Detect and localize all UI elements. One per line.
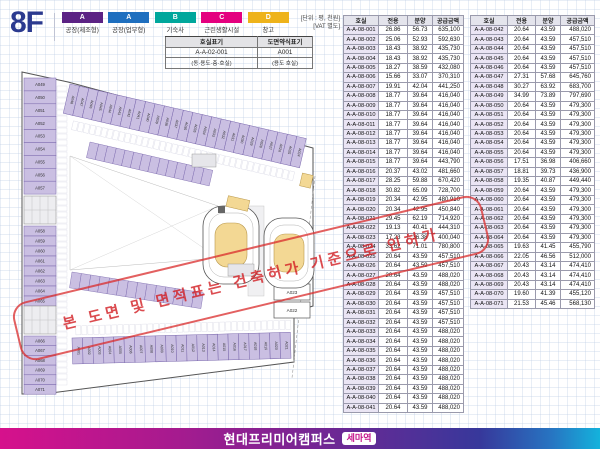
room-label: A016 (232, 342, 236, 351)
unit-row: A-A-08-00318.4338.92435,730 (344, 44, 464, 53)
supply-price: 488,020 (433, 328, 464, 337)
area-supply: 43.14 (536, 271, 561, 280)
area-supply: 43.59 (536, 35, 561, 44)
area-supply: 43.59 (408, 356, 433, 365)
area-exclusive: 29.45 (379, 214, 408, 223)
unit-id: A-A-08-051 (471, 110, 508, 119)
room-label: A017 (243, 342, 247, 351)
area-exclusive: 18.77 (379, 129, 408, 138)
supply-price: 474,410 (561, 271, 595, 280)
room-label: A052 (35, 121, 45, 126)
supply-price: 457,510 (433, 252, 464, 261)
area-supply: 43.59 (408, 252, 433, 261)
unit-id: A-A-08-024 (344, 243, 379, 252)
unit-row: A-A-08-00918.7739.64416,040 (344, 101, 464, 110)
area-exclusive: 20.64 (508, 139, 536, 148)
area-supply: 43.59 (408, 309, 433, 318)
supply-price: 400,040 (433, 233, 464, 242)
area-supply: 46.56 (536, 252, 561, 261)
unit-note-line1: [단위 : 평, 천원] (252, 15, 340, 23)
unit-row: A-A-08-03720.6443.59488,020 (344, 365, 464, 374)
core-block (192, 154, 216, 167)
area-supply: 43.59 (536, 195, 561, 204)
room-label: A003 (97, 346, 101, 355)
area-supply: 39.64 (408, 120, 433, 129)
unit-row: A-A-08-02020.3442.95450,840 (344, 205, 464, 214)
supply-price: 406,660 (561, 158, 595, 167)
room-label: A056 (35, 172, 45, 177)
ramp-core-right (274, 234, 304, 272)
column-header: 전용 (508, 16, 536, 26)
elevator (218, 206, 225, 213)
room-label: A001 (76, 347, 80, 356)
unit-row: A-A-08-03120.6443.59457,510 (344, 309, 464, 318)
room-label: A068 (35, 358, 45, 363)
area-exclusive: 22.05 (508, 252, 536, 261)
room-label: A009 (160, 344, 164, 353)
room-label: A014 (212, 343, 216, 352)
area-exclusive: 18.77 (379, 158, 408, 167)
area-supply: 38.59 (408, 63, 433, 72)
unit-id: A-A-08-011 (344, 120, 379, 129)
unit-id: A-A-08-048 (471, 82, 508, 91)
area-exclusive: 18.77 (379, 139, 408, 148)
supply-price: 479,300 (561, 214, 595, 223)
area-exclusive: 20.64 (508, 186, 536, 195)
unit-id: A-A-08-038 (344, 375, 379, 384)
supply-price: 457,510 (433, 261, 464, 270)
unit-row: A-A-08-02129.4562.19714,920 (344, 214, 464, 223)
unit-id: A-A-08-047 (471, 73, 508, 82)
room-label: A062 (35, 269, 45, 274)
area-exclusive: 17.51 (508, 158, 536, 167)
unit-id: A-A-08-005 (344, 63, 379, 72)
supply-price: 479,300 (561, 110, 595, 119)
area-exclusive: 20.64 (379, 365, 408, 374)
supply-price: 479,300 (561, 129, 595, 138)
room-label: A013 (201, 343, 205, 352)
unit-id: A-A-08-066 (471, 252, 508, 261)
project-logo: 현대프리미어캠퍼스 (224, 429, 336, 448)
area-supply: 42.04 (408, 82, 433, 91)
supply-price: 457,510 (433, 299, 464, 308)
supply-price: 435,730 (433, 54, 464, 63)
supply-price: 457,510 (561, 44, 595, 53)
area-supply: 43.59 (408, 403, 433, 412)
room-label: A015 (222, 343, 226, 352)
area-exclusive: 20.64 (508, 148, 536, 157)
area-supply: 65.09 (408, 186, 433, 195)
unit-id: A-A-08-027 (344, 271, 379, 280)
area-exclusive: 20.64 (379, 328, 408, 337)
area-supply: 43.59 (408, 328, 433, 337)
area-exclusive: 18.81 (508, 167, 536, 176)
area-supply: 43.59 (408, 280, 433, 289)
unit-row: A-A-08-01620.3743.02481,660 (344, 167, 464, 176)
room-label: A067 (35, 348, 45, 353)
area-exclusive: 20.64 (379, 318, 408, 327)
unit-row: A-A-08-02520.6443.59457,510 (344, 252, 464, 261)
unit-id: A-A-08-042 (471, 26, 508, 35)
area-supply: 43.59 (408, 375, 433, 384)
unit-id: A-A-08-054 (471, 139, 508, 148)
unit-row: A-A-08-06720.4343.14474,410 (471, 261, 595, 270)
unit-row: A-A-08-06519.6341.45455,790 (471, 243, 595, 252)
unit-row: A-A-08-02219.1340.41444,310 (344, 224, 464, 233)
area-exclusive: 20.64 (379, 309, 408, 318)
price-table-left: 호실전용분양공급금액A-A-08-00126.8656.73635,100A-A… (343, 15, 464, 413)
area-supply: 43.59 (408, 271, 433, 280)
unit-id: A-A-08-002 (344, 35, 379, 44)
supply-price: 488,020 (433, 346, 464, 355)
legend-chip: C (201, 12, 242, 23)
unit-row: A-A-08-00418.4338.92435,730 (344, 54, 464, 63)
legend-item-2: B기숙사 (152, 12, 199, 34)
area-supply: 39.64 (408, 92, 433, 101)
supply-price: 416,040 (433, 148, 464, 157)
room-label: A069 (35, 368, 45, 373)
unit-id: A-A-08-015 (344, 158, 379, 167)
supply-price: 370,310 (433, 73, 464, 82)
area-exclusive: 17.23 (379, 233, 408, 242)
supply-price: 488,020 (433, 375, 464, 384)
supply-price: 457,510 (433, 318, 464, 327)
room-label: A050 (35, 95, 45, 100)
brochure-page: 8F A공장(제조형)A공장(업무형)B기숙사C근린생활시설D창고 [단위 : … (0, 0, 600, 449)
area-exclusive: 20.64 (508, 63, 536, 72)
area-exclusive: 21.53 (508, 299, 536, 308)
supply-price: 449,440 (561, 177, 595, 186)
unit-id: A-A-08-012 (344, 129, 379, 138)
unit-row: A-A-08-03520.6443.59488,020 (344, 346, 464, 355)
supply-price: 568,130 (561, 299, 595, 308)
legend-item-1: A공장(업무형) (106, 12, 153, 34)
legend-item-0: A공장(제조형) (59, 12, 106, 34)
supply-price: 488,020 (561, 26, 595, 35)
unit-row: A-A-08-05819.3540.87449,440 (471, 177, 595, 186)
unit-row: A-A-08-06920.4343.14474,410 (471, 280, 595, 289)
unit-row: A-A-08-06622.0546.56512,000 (471, 252, 595, 261)
unit-id: A-A-08-030 (344, 299, 379, 308)
supply-price: 480,910 (433, 195, 464, 204)
area-exclusive: 20.64 (508, 195, 536, 204)
supply-price: 488,020 (433, 394, 464, 403)
room-label: A011 (180, 344, 184, 352)
unit-id: A-A-08-025 (344, 252, 379, 261)
supply-price: 488,020 (433, 384, 464, 393)
footer-bar: 현대프리미어캠퍼스 세마역 (0, 428, 600, 449)
area-exclusive: 20.64 (379, 337, 408, 346)
area-supply: 43.59 (408, 394, 433, 403)
area-exclusive: 18.43 (379, 54, 408, 63)
unit-row: A-A-08-01418.7739.64416,040 (344, 148, 464, 157)
unit-row: A-A-08-03020.6443.59457,510 (344, 299, 464, 308)
supply-price: 488,020 (433, 365, 464, 374)
floor-plan: A048A047A046A045A044A043A042A041A040A039… (6, 56, 320, 418)
unit-row: A-A-08-01518.7739.64443,790 (344, 158, 464, 167)
unit-id: A-A-08-026 (344, 261, 379, 270)
area-supply: 43.59 (408, 290, 433, 299)
area-supply: 41.39 (536, 290, 561, 299)
area-exclusive: 25.06 (379, 35, 408, 44)
column-header: 분양 (536, 16, 561, 26)
unit-id: A-A-08-009 (344, 101, 379, 110)
area-supply: 40.41 (408, 224, 433, 233)
unit-row: A-A-08-00719.9142.04441,250 (344, 82, 464, 91)
supply-price: 714,920 (433, 214, 464, 223)
unit-row: A-A-08-04934.9973.89797,690 (471, 92, 595, 101)
price-table-right: 호실전용분양공급금액A-A-08-04220.6443.59488,020A-A… (470, 15, 595, 309)
area-exclusive: 20.43 (508, 271, 536, 280)
supply-price: 481,660 (433, 167, 464, 176)
unit-id: A-A-08-037 (344, 365, 379, 374)
area-supply: 41.45 (536, 243, 561, 252)
unit-id: A-A-08-060 (471, 195, 508, 204)
unit-row: A-A-08-04620.6443.59457,510 (471, 63, 595, 72)
floor-plan-svg: A048A047A046A045A044A043A042A041A040A039… (6, 56, 320, 418)
unit-id: A-A-08-013 (344, 139, 379, 148)
area-exclusive: 20.64 (508, 54, 536, 63)
unit-row: A-A-08-01318.7739.64416,040 (344, 139, 464, 148)
supply-price: 488,020 (433, 356, 464, 365)
supply-price: 488,020 (433, 271, 464, 280)
area-exclusive: 20.64 (379, 271, 408, 280)
column-header: 분양 (408, 16, 433, 26)
unit-row: A-A-08-05617.5136.98406,660 (471, 158, 595, 167)
unit-row: A-A-08-01218.7739.64416,040 (344, 129, 464, 138)
area-supply: 57.68 (536, 73, 561, 82)
unit-id: A-A-08-010 (344, 110, 379, 119)
area-supply: 43.59 (536, 110, 561, 119)
unit-id: A-A-08-019 (344, 195, 379, 204)
room-label: A021 (284, 341, 288, 350)
unit-id: A-A-08-055 (471, 148, 508, 157)
area-exclusive: 20.64 (379, 394, 408, 403)
room-label: A055 (35, 159, 45, 164)
unit-row: A-A-08-01118.7739.64416,040 (344, 120, 464, 129)
notation-cell: 도면약식표기 (258, 37, 313, 48)
supply-price: 512,000 (561, 252, 595, 261)
unit-row: A-A-08-02433.6271.01780,800 (344, 243, 464, 252)
unit-id: A-A-08-068 (471, 271, 508, 280)
area-exclusive: 20.64 (379, 384, 408, 393)
unit-id: A-A-08-020 (344, 205, 379, 214)
unit-id: A-A-08-017 (344, 177, 379, 186)
area-supply: 38.92 (408, 54, 433, 63)
supply-price: 797,690 (561, 92, 595, 101)
supply-price: 479,300 (561, 224, 595, 233)
unit-id: A-A-08-052 (471, 120, 508, 129)
room-label: A008 (149, 345, 153, 354)
area-exclusive: 20.64 (379, 346, 408, 355)
unit-id: A-A-08-033 (344, 328, 379, 337)
unit-row: A-A-08-02920.6443.59457,510 (344, 290, 464, 299)
unit-note-line2: [VAT 별도] (252, 23, 340, 31)
area-supply: 39.73 (536, 167, 561, 176)
area-exclusive: 18.77 (379, 92, 408, 101)
area-supply: 43.59 (536, 186, 561, 195)
supply-price: 474,410 (561, 280, 595, 289)
unit-row: A-A-08-04220.6443.59488,020 (471, 26, 595, 35)
unit-id: A-A-08-031 (344, 309, 379, 318)
unit-id: A-A-08-041 (344, 403, 379, 412)
unit-row: A-A-08-05420.6443.59479,300 (471, 139, 595, 148)
unit-row: A-A-08-02317.2336.38400,040 (344, 233, 464, 242)
unit-row: A-A-08-05320.6443.59479,300 (471, 129, 595, 138)
supply-price: 457,510 (433, 309, 464, 318)
area-supply: 43.59 (536, 63, 561, 72)
area-supply: 36.38 (408, 233, 433, 242)
unit-id: A-A-08-061 (471, 205, 508, 214)
supply-price: 436,900 (561, 167, 595, 176)
unit-id: A-A-08-021 (344, 214, 379, 223)
area-supply: 43.59 (536, 101, 561, 110)
area-supply: 43.59 (536, 44, 561, 53)
room-label: A005 (118, 345, 122, 354)
unit-row: A-A-08-04020.6443.59488,020 (344, 394, 464, 403)
room-label: A058 (35, 229, 45, 234)
room-label: A066 (35, 338, 45, 343)
supply-price: 450,840 (433, 205, 464, 214)
unit-row: A-A-08-04830.2763.92683,700 (471, 82, 595, 91)
area-supply: 43.59 (536, 129, 561, 138)
area-supply: 43.59 (408, 337, 433, 346)
room-label: A004 (108, 346, 112, 355)
area-supply: 43.14 (536, 261, 561, 270)
ramp-core-left (215, 223, 247, 267)
supply-price: 416,040 (433, 110, 464, 119)
room-label: A006 (128, 345, 132, 354)
unit-id: A-A-08-064 (471, 233, 508, 242)
unit-row: A-A-08-05520.6443.59479,300 (471, 148, 595, 157)
unit-id: A-A-08-023 (344, 233, 379, 242)
unit-id: A-A-08-065 (471, 243, 508, 252)
area-exclusive: 20.34 (379, 195, 408, 204)
unit-row: A-A-08-06120.6443.59479,300 (471, 205, 595, 214)
unit-row: A-A-08-04320.6443.59457,510 (471, 35, 595, 44)
area-supply: 73.89 (536, 92, 561, 101)
supply-price: 479,300 (561, 195, 595, 204)
unit-row: A-A-08-05220.6443.59479,300 (471, 120, 595, 129)
area-exclusive: 20.64 (379, 299, 408, 308)
legend-chip: A (62, 12, 103, 23)
area-supply: 42.95 (408, 195, 433, 204)
area-supply: 52.93 (408, 35, 433, 44)
area-exclusive: 27.31 (508, 73, 536, 82)
area-exclusive: 20.64 (508, 35, 536, 44)
area-exclusive: 26.86 (379, 26, 408, 35)
area-supply: 39.64 (408, 148, 433, 157)
area-exclusive: 20.64 (508, 224, 536, 233)
legend-item-3: C근린생활시설 (199, 12, 246, 34)
area-exclusive: 20.64 (379, 375, 408, 384)
area-supply: 40.87 (536, 177, 561, 186)
unit-id: A-A-08-049 (471, 92, 508, 101)
unit-id: A-A-08-070 (471, 290, 508, 299)
unit-id: A-A-08-062 (471, 214, 508, 223)
unit-row: A-A-08-00225.0652.93592,630 (344, 35, 464, 44)
supply-price: 457,510 (561, 54, 595, 63)
area-exclusive: 19.91 (379, 82, 408, 91)
area-supply: 43.59 (408, 261, 433, 270)
area-exclusive: 20.37 (379, 167, 408, 176)
supply-price: 488,020 (433, 337, 464, 346)
unit-row: A-A-08-06820.4343.14474,410 (471, 271, 595, 280)
area-exclusive: 20.64 (508, 44, 536, 53)
unit-row: A-A-08-02820.6443.59488,020 (344, 280, 464, 289)
supply-price: 479,300 (561, 139, 595, 148)
supply-price: 635,100 (433, 26, 464, 35)
supply-price: 479,300 (561, 120, 595, 129)
area-exclusive: 20.64 (508, 110, 536, 119)
supply-price: 435,730 (433, 44, 464, 53)
area-exclusive: 20.64 (508, 205, 536, 214)
area-supply: 56.73 (408, 26, 433, 35)
area-exclusive: 20.64 (508, 214, 536, 223)
supply-price: 455,790 (561, 243, 595, 252)
unit-id: A-A-08-053 (471, 129, 508, 138)
unit-row: A-A-08-00126.8656.73635,100 (344, 26, 464, 35)
area-supply: 43.59 (408, 318, 433, 327)
supply-price: 592,630 (433, 35, 464, 44)
supply-price: 416,040 (433, 92, 464, 101)
supply-price: 457,510 (561, 35, 595, 44)
unit-row: A-A-08-07121.5345.46568,130 (471, 299, 595, 308)
unit-row: A-A-08-06420.6443.59479,300 (471, 233, 595, 242)
unit-id: A-A-08-003 (344, 44, 379, 53)
area-exclusive: 20.64 (508, 233, 536, 242)
unit-id: A-A-08-056 (471, 158, 508, 167)
area-supply: 43.02 (408, 167, 433, 176)
legend-label: 공장(제조형) (59, 25, 106, 34)
legend-label: 공장(업무형) (106, 25, 153, 34)
supply-price: 457,510 (561, 63, 595, 72)
unit-id: A-A-08-006 (344, 73, 379, 82)
core-block (228, 264, 254, 276)
area-exclusive: 15.66 (379, 73, 408, 82)
supply-price: 455,120 (561, 290, 595, 299)
area-exclusive: 18.77 (379, 148, 408, 157)
unit-row: A-A-08-03620.6443.59488,020 (344, 356, 464, 365)
unit-row: A-A-08-03320.6443.59488,020 (344, 328, 464, 337)
unit-row: A-A-08-02620.6443.59457,510 (344, 261, 464, 270)
area-supply: 33.07 (408, 73, 433, 82)
area-exclusive: 30.27 (508, 82, 536, 91)
area-exclusive: 20.43 (508, 280, 536, 289)
supply-price: 728,700 (433, 186, 464, 195)
unit-id: A-A-08-057 (471, 167, 508, 176)
unit-id: A-A-08-007 (344, 82, 379, 91)
supply-price: 780,800 (433, 243, 464, 252)
area-supply: 39.64 (408, 158, 433, 167)
room-label: A022 (287, 308, 298, 313)
column-header: 공급금액 (433, 16, 464, 26)
area-supply: 39.64 (408, 101, 433, 110)
station-badge: 세마역 (342, 432, 377, 445)
unit-id: A-A-08-034 (344, 337, 379, 346)
unit-id: A-A-08-058 (471, 177, 508, 186)
unit-id: A-A-08-043 (471, 35, 508, 44)
area-supply: 43.59 (408, 346, 433, 355)
room-label: A054 (35, 147, 45, 152)
unit-row: A-A-08-01830.8265.09728,700 (344, 186, 464, 195)
room-label: A049 (35, 82, 45, 87)
unit-row: A-A-08-06220.6443.59479,300 (471, 214, 595, 223)
unit-id: A-A-08-032 (344, 318, 379, 327)
area-supply: 43.59 (536, 233, 561, 242)
legend-chip: A (108, 12, 149, 23)
supply-price: 457,510 (433, 290, 464, 299)
